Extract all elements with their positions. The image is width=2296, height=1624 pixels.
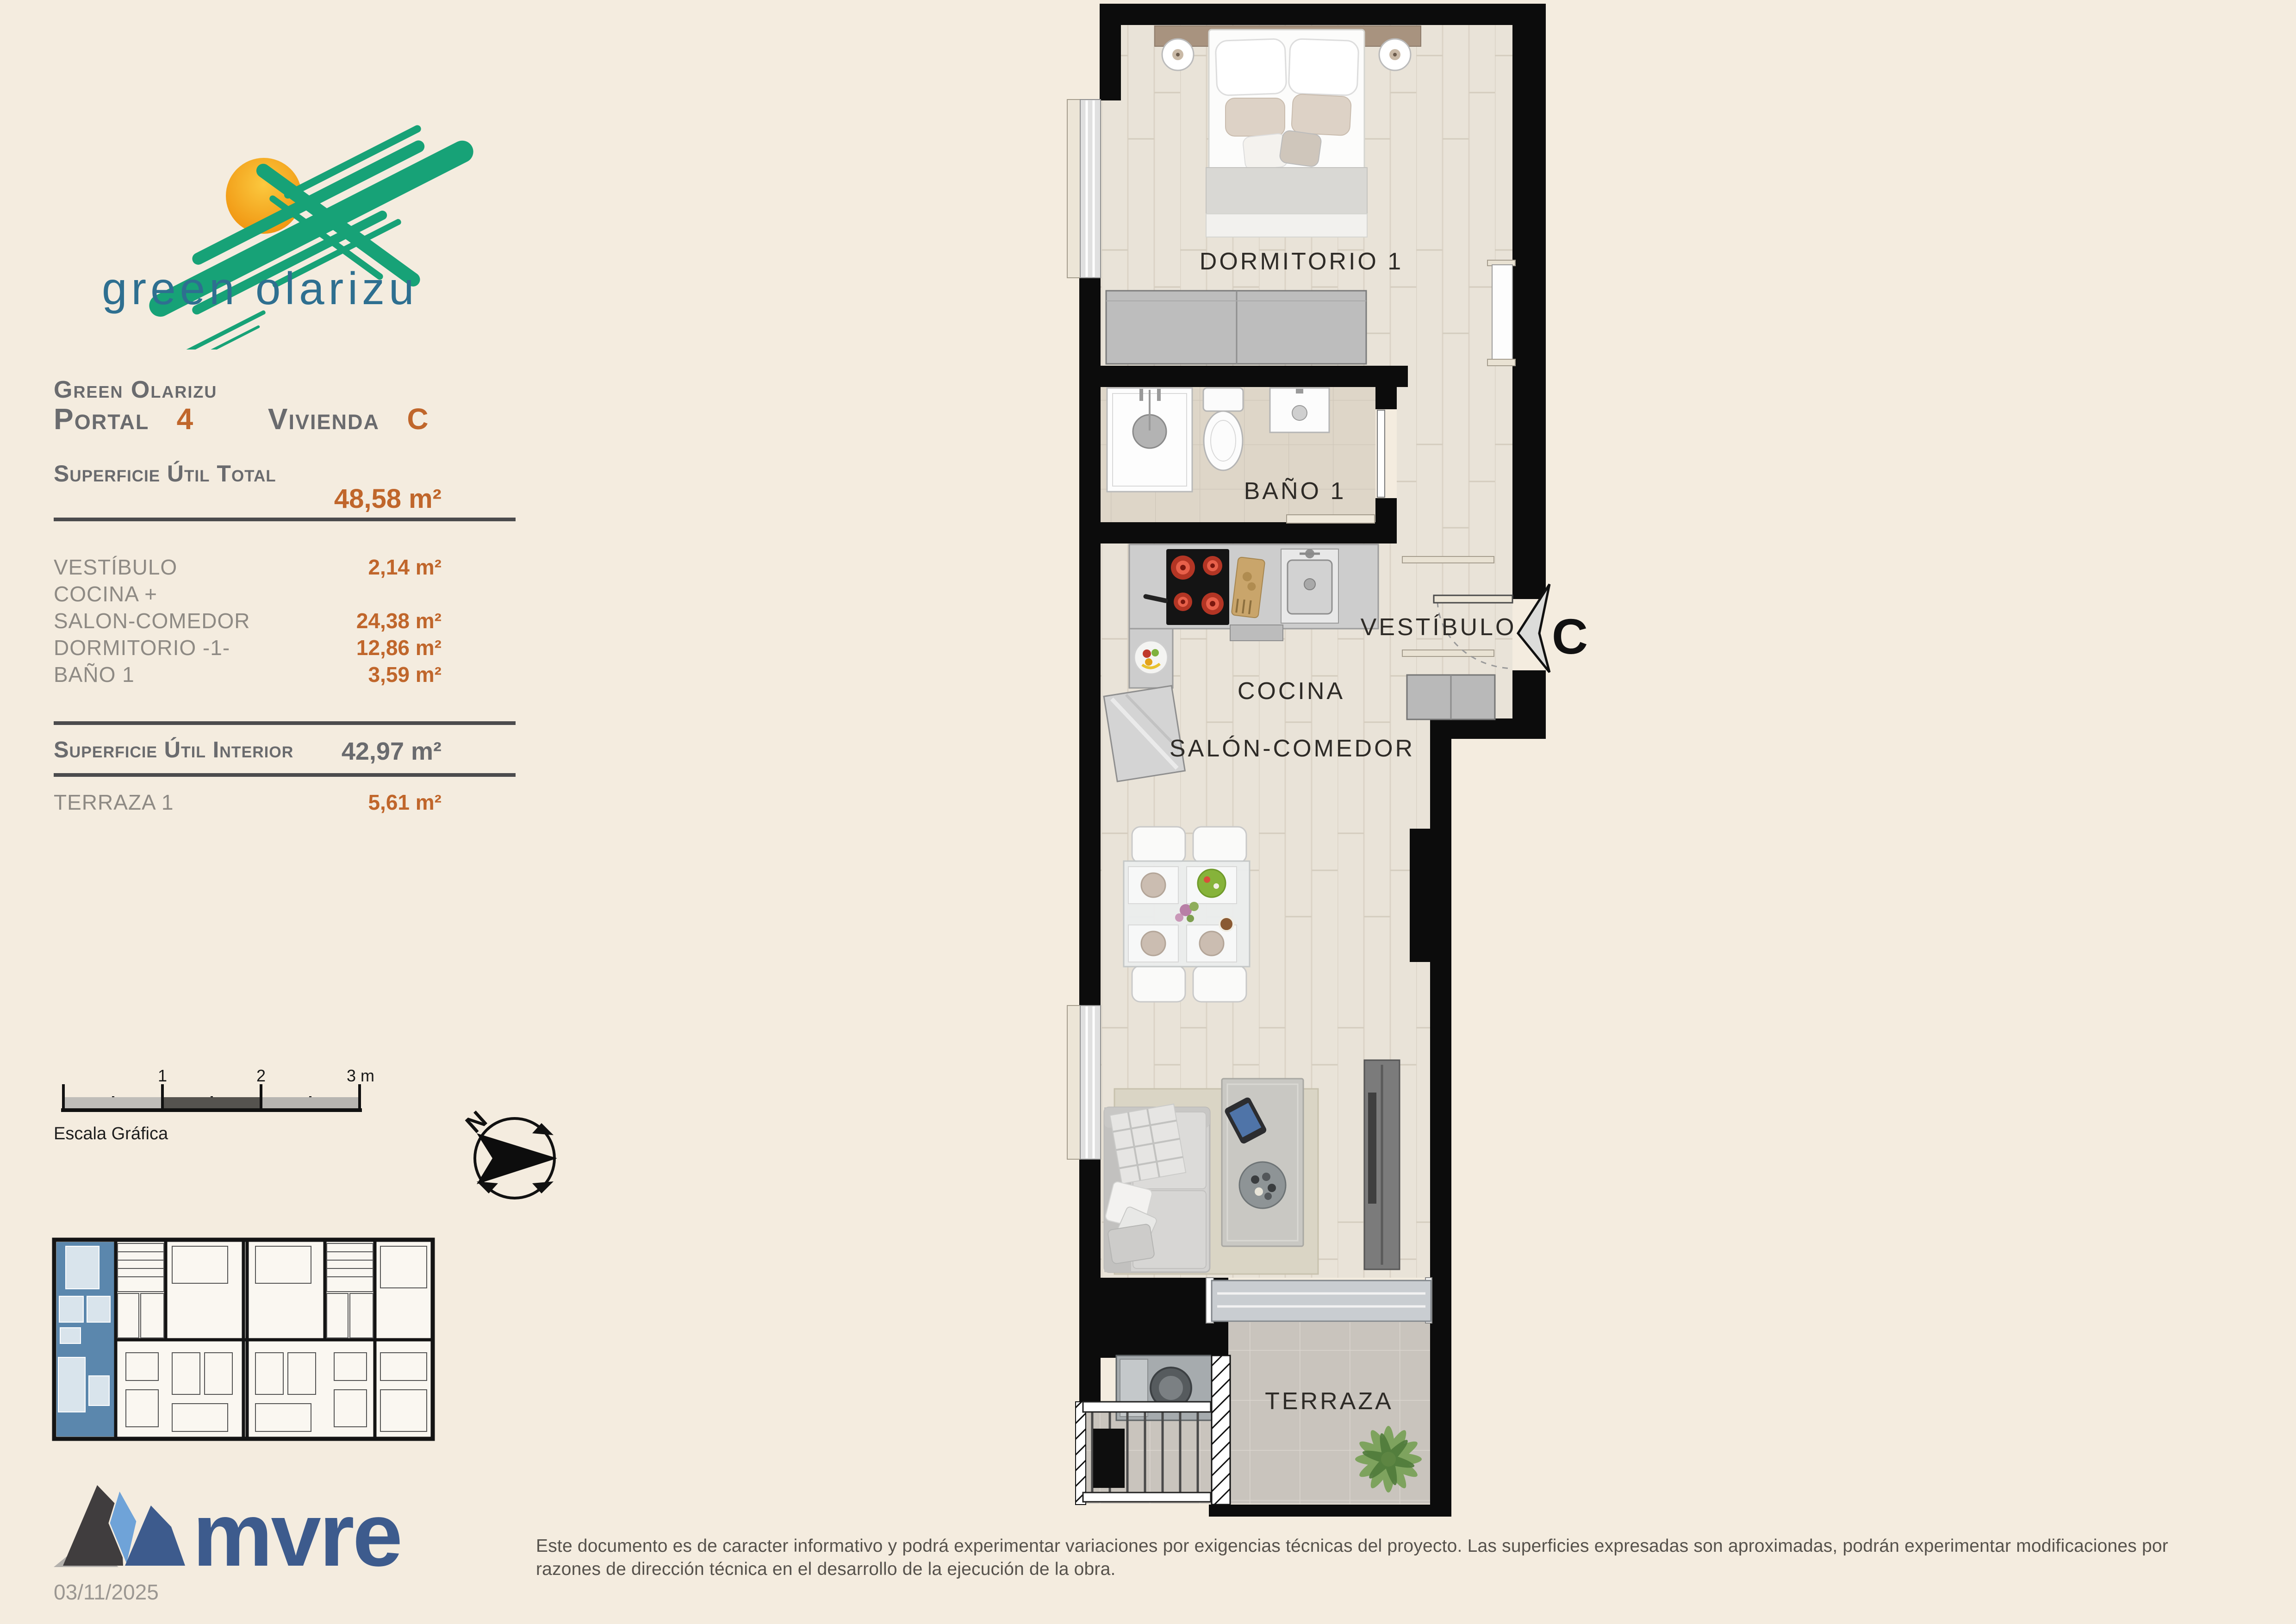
scale-tick-1: 1 <box>158 1068 167 1085</box>
graphic-scale-bar: 1 2 3 m. <box>52 1068 376 1128</box>
bedroom-label: DORMITORIO 1 <box>1200 248 1403 275</box>
mvre-logo: mvre <box>50 1477 402 1579</box>
dishwasher-icon <box>1104 686 1185 781</box>
tv-unit-icon <box>1364 1060 1400 1269</box>
vivienda-label: Vivienda <box>268 402 380 436</box>
north-label: N <box>464 1106 492 1138</box>
green-olarizu-logo: green olarizu <box>50 86 587 350</box>
terrace-partition-wall <box>1212 1355 1230 1505</box>
interior-surface-row: Superficie Útil Interior 42,97 m² <box>54 737 442 766</box>
table-row: COCINA + <box>54 581 442 607</box>
kitchen-label: COCINA <box>1238 678 1345 705</box>
room-label: SALON-COMEDOR <box>54 608 250 633</box>
interior-value: 42,97 m² <box>342 737 442 766</box>
north-arrow-icon: N <box>464 1106 568 1211</box>
room-label: COCINA + <box>54 581 157 606</box>
hall-label: VESTÍBULO <box>1361 614 1517 641</box>
portal-number: 4 <box>177 402 194 436</box>
unit-letter-marker: C <box>1552 608 1588 664</box>
terrace-side-wall <box>1076 1402 1086 1505</box>
coffee-table-icon <box>1222 1079 1303 1246</box>
document-date: 03/11/2025 <box>54 1580 159 1605</box>
terrace-row: TERRAZA 1 5,61 m² <box>54 790 442 815</box>
surface-table: VESTÍBULO 2,14 m² COCINA + SALON-COMEDOR… <box>54 554 442 688</box>
sofa-icon <box>1104 1104 1210 1272</box>
unit-floor-plan: DORMITORIO 1 BAÑO 1 VESTÍBULO COCINA SAL… <box>1055 0 1652 1537</box>
room-area: 12,86 m² <box>356 635 442 660</box>
interior-label: Superficie Útil Interior <box>54 737 293 766</box>
scale-tick-2: 2 <box>256 1068 266 1085</box>
unit-heading: Portal 4 Vivienda C <box>54 402 429 436</box>
room-label: DORMITORIO -1- <box>54 635 230 660</box>
table-row: DORMITORIO -1- 12,86 m² <box>54 634 442 661</box>
terrace-label: TERRAZA <box>1265 1388 1394 1415</box>
mvre-wordmark: mvre <box>193 1484 401 1579</box>
project-name: Green Olarizu <box>54 376 217 404</box>
disclaimer-line-1: Este documento es de caracter informativ… <box>536 1536 2168 1556</box>
divider <box>54 773 516 777</box>
kitchen-appliance <box>1230 625 1283 641</box>
disclaimer-line-2: razones de dirección técnica en el desar… <box>536 1559 1116 1580</box>
bathroom-sink-icon <box>1270 388 1329 432</box>
logo-wordmark: green olarizu <box>102 263 418 314</box>
divider <box>54 721 516 725</box>
bathroom-shelf <box>1287 515 1375 523</box>
living-label: SALÓN-COMEDOR <box>1170 735 1415 762</box>
room-area: 2,14 m² <box>368 555 442 580</box>
portal-label: Portal <box>54 402 149 436</box>
vivienda-letter: C <box>407 402 429 436</box>
scale-tick-3: 3 m. <box>347 1068 376 1085</box>
toilet-icon <box>1203 388 1243 470</box>
kitchen-sink-icon <box>1281 549 1338 623</box>
room-label: BAÑO 1 <box>54 662 135 687</box>
terrace-label: TERRAZA 1 <box>54 790 174 815</box>
fruit-bowl-icon <box>1134 641 1168 674</box>
divider <box>54 518 516 521</box>
table-row: BAÑO 1 3,59 m² <box>54 661 442 688</box>
scale-bar-label: Escala Gráfica <box>54 1124 168 1144</box>
shower-icon <box>1107 388 1192 492</box>
bedroom-window-icon <box>1067 100 1101 278</box>
living-window-icon <box>1067 1006 1101 1159</box>
floorplan-sheet: green olarizu Green Olarizu Portal 4 Viv… <box>0 0 2296 1624</box>
room-area: 3,59 m² <box>368 662 442 687</box>
terrace-value: 5,61 m² <box>368 790 442 815</box>
wall-niche <box>1487 260 1515 366</box>
total-surface-value: 48,58 m² <box>54 483 442 514</box>
bathroom-door-icon <box>1377 410 1385 497</box>
bath-label: BAÑO 1 <box>1244 478 1346 505</box>
building-key-plan <box>52 1237 436 1443</box>
table-row: VESTÍBULO 2,14 m² <box>54 554 442 581</box>
room-label: VESTÍBULO <box>54 555 177 580</box>
room-area: 24,38 m² <box>356 608 442 633</box>
wardrobe-icon <box>1106 291 1366 364</box>
terrace-sliding-door-icon <box>1206 1278 1432 1323</box>
table-row: SALON-COMEDOR 24,38 m² <box>54 607 442 634</box>
